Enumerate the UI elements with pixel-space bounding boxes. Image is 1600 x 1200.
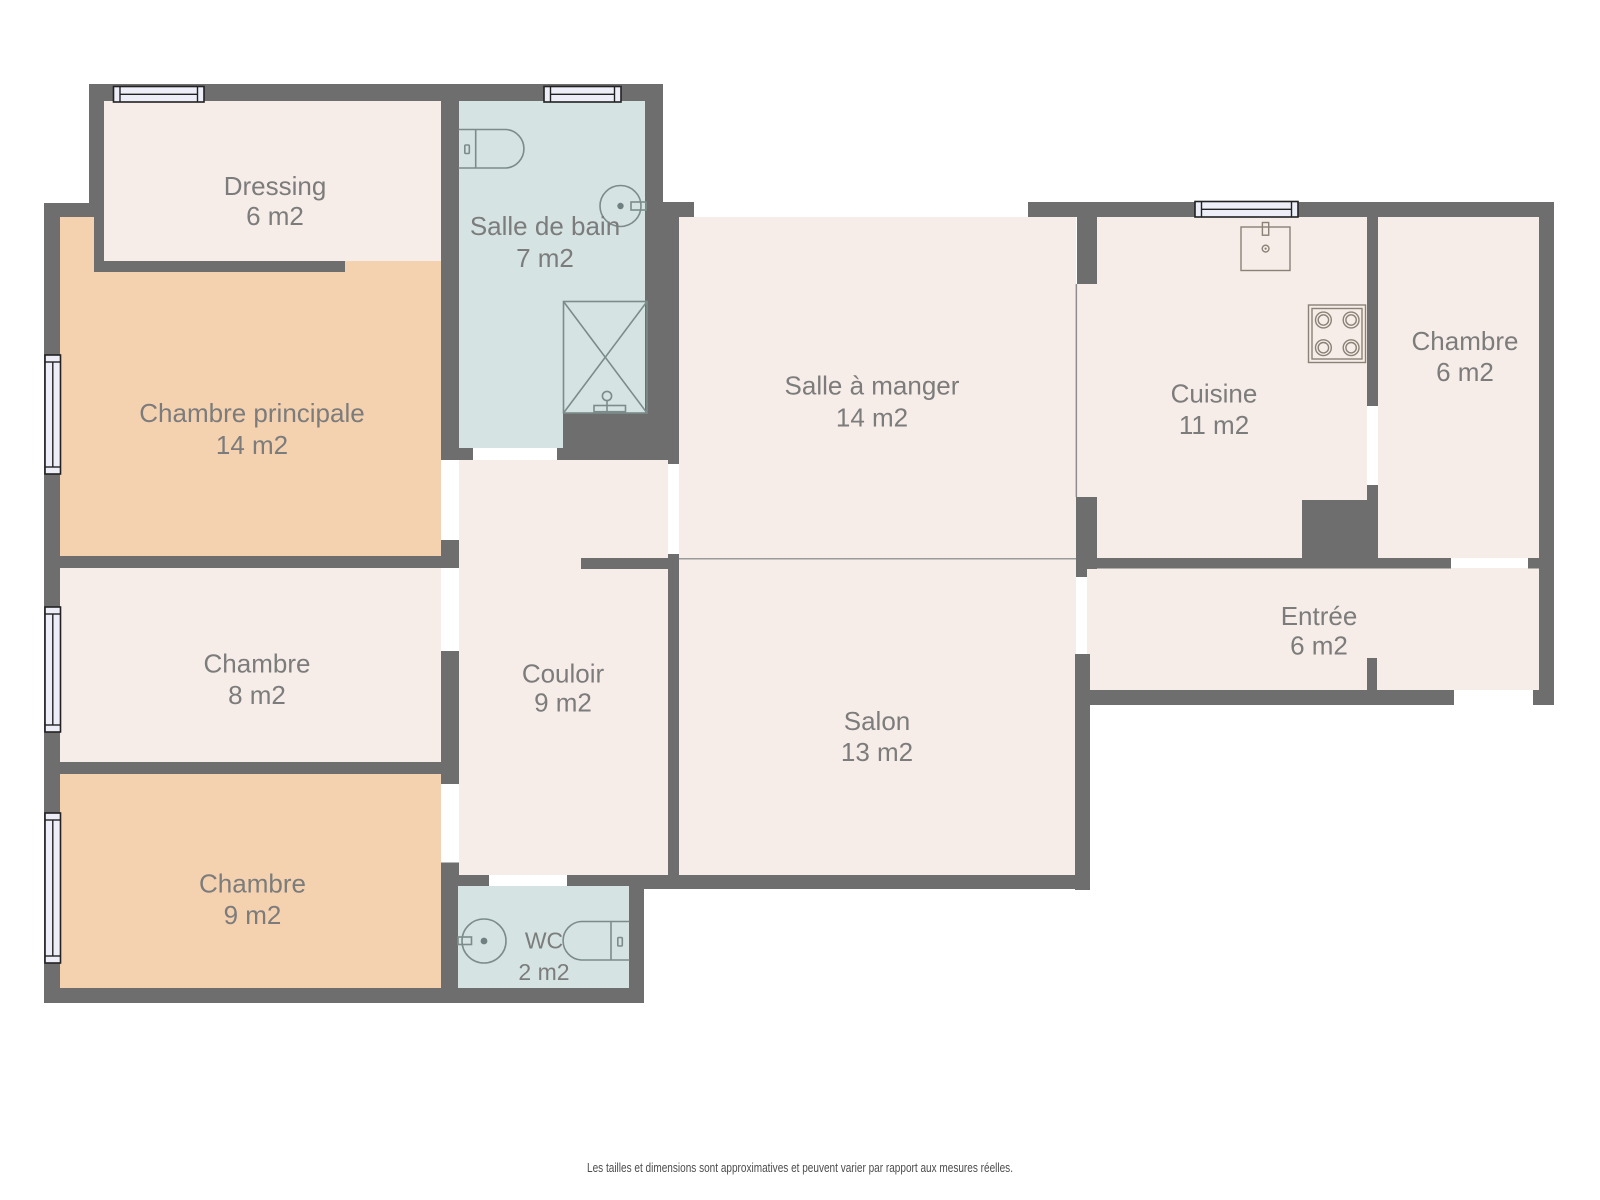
svg-text:Entrée: Entrée — [1281, 601, 1358, 631]
svg-text:14 m2: 14 m2 — [216, 430, 288, 460]
svg-text:Couloir: Couloir — [522, 659, 605, 689]
svg-text:2 m2: 2 m2 — [518, 959, 569, 985]
svg-text:6 m2: 6 m2 — [1436, 357, 1494, 387]
svg-text:7 m2: 7 m2 — [516, 243, 574, 273]
svg-text:Salle de bain: Salle de bain — [470, 211, 620, 241]
svg-text:13 m2: 13 m2 — [841, 737, 913, 767]
svg-text:6 m2: 6 m2 — [246, 201, 304, 231]
svg-text:Cuisine: Cuisine — [1171, 379, 1258, 409]
svg-text:11 m2: 11 m2 — [1179, 410, 1249, 440]
svg-text:Les tailles et dimensions sont: Les tailles et dimensions sont approxima… — [587, 1160, 1013, 1175]
svg-text:Chambre: Chambre — [199, 869, 306, 899]
svg-text:6 m2: 6 m2 — [1290, 631, 1348, 661]
svg-text:Chambre principale: Chambre principale — [139, 398, 364, 428]
svg-text:Salle à manger: Salle à manger — [785, 371, 960, 401]
svg-text:14 m2: 14 m2 — [836, 403, 908, 433]
svg-text:WC: WC — [525, 928, 563, 954]
svg-text:Salon: Salon — [844, 706, 911, 736]
svg-text:9 m2: 9 m2 — [534, 688, 592, 718]
svg-text:Chambre: Chambre — [204, 649, 311, 679]
svg-text:8 m2: 8 m2 — [228, 680, 286, 710]
svg-text:9 m2: 9 m2 — [224, 900, 282, 930]
svg-text:Dressing: Dressing — [224, 171, 327, 201]
svg-text:Chambre: Chambre — [1412, 326, 1519, 356]
